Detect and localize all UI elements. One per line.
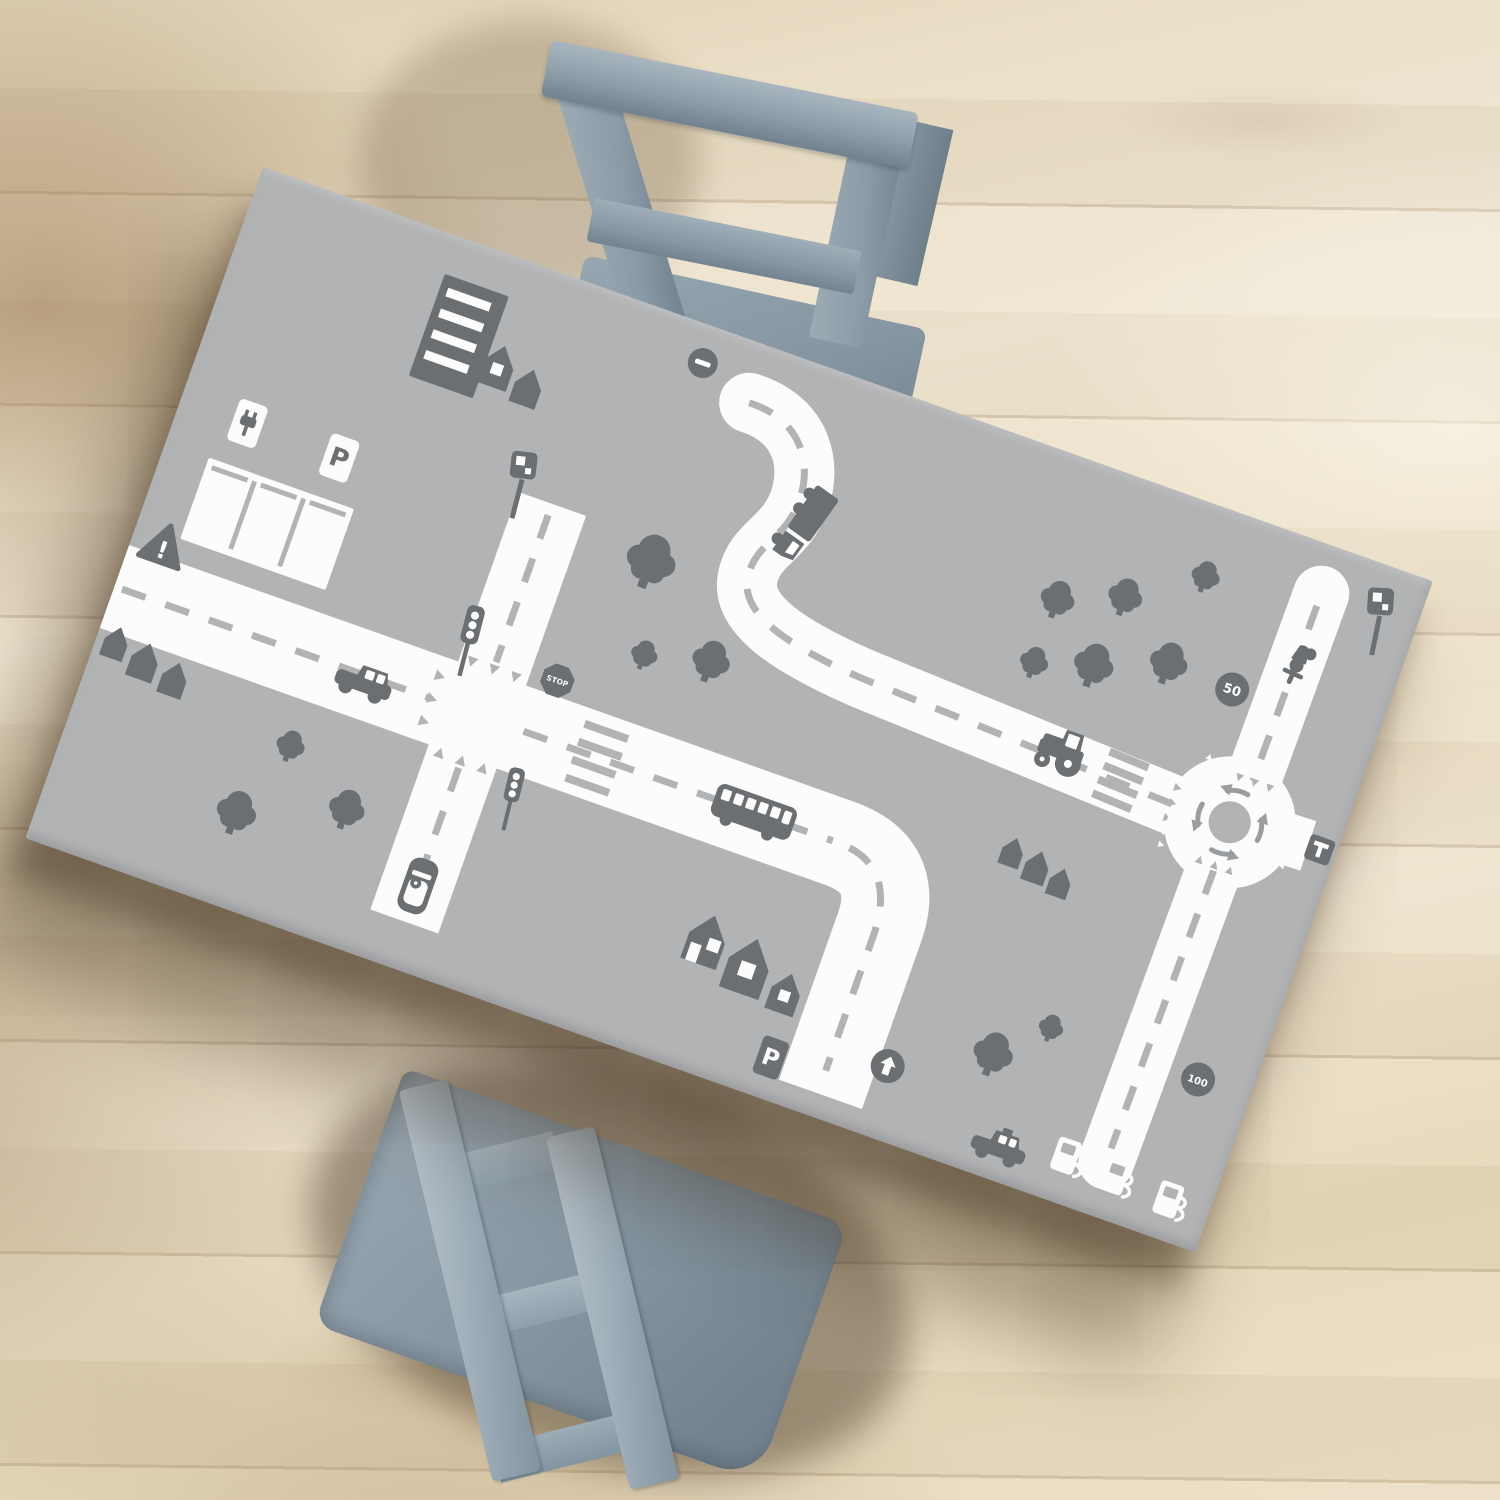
tree — [210, 785, 263, 841]
tree — [1035, 576, 1080, 624]
house — [680, 909, 732, 970]
tree — [686, 635, 736, 688]
tree — [1143, 637, 1193, 690]
speed-limit-50-sign: 50 — [1210, 668, 1253, 711]
tree — [1186, 557, 1224, 597]
tree — [323, 784, 371, 834]
tree — [626, 637, 661, 674]
house — [508, 365, 547, 410]
house — [719, 932, 778, 1000]
speed-limit-100-sign: 100 — [1176, 1058, 1219, 1101]
tree — [1067, 638, 1120, 694]
tree — [1015, 643, 1053, 683]
house — [764, 969, 806, 1018]
tree — [1102, 573, 1147, 621]
house — [1020, 848, 1054, 887]
tree — [1034, 1011, 1067, 1045]
roundabout — [1174, 767, 1285, 878]
tree — [966, 1027, 1019, 1083]
house — [1045, 865, 1075, 900]
parking-sign: P — [318, 432, 361, 483]
speed-camera — [1355, 584, 1398, 658]
tree — [618, 527, 684, 596]
fuel-pump — [1151, 1179, 1192, 1221]
taxi — [967, 1119, 1032, 1172]
ev-charging-sign — [226, 398, 269, 449]
scene: P!STOPP50100 — [0, 0, 1500, 1500]
tree — [271, 726, 309, 766]
no-entry-sign — [684, 344, 722, 382]
house — [156, 659, 192, 700]
traffic-light — [496, 766, 526, 832]
house — [997, 835, 1027, 870]
